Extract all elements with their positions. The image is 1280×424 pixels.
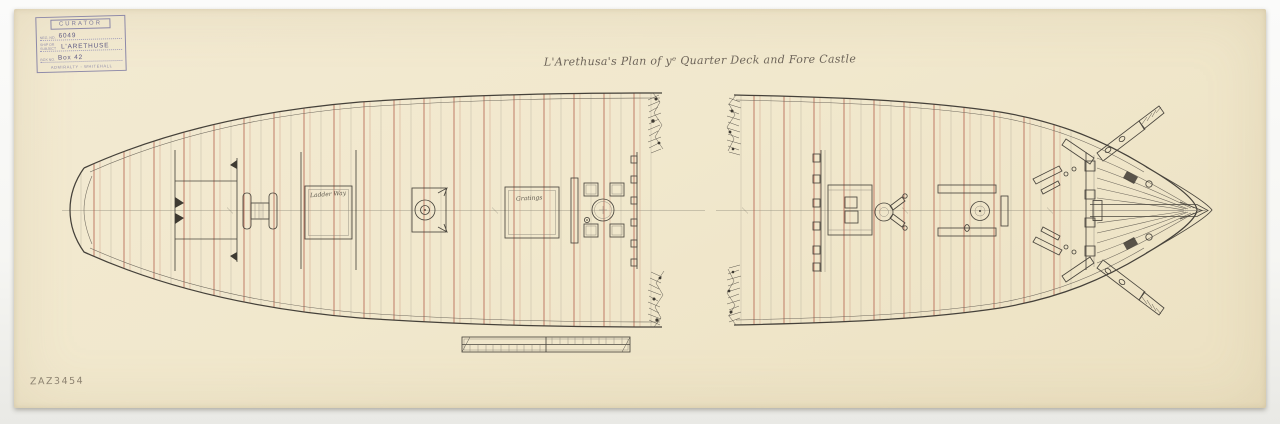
scale-bar xyxy=(462,337,630,352)
stamp-value-ship: L'ARETHUSE xyxy=(61,42,109,50)
stamp-row-neg-no: Neg. No. 6049 xyxy=(40,30,122,41)
head-gratings-bottom xyxy=(1097,211,1194,263)
hull-bow-half xyxy=(727,95,1212,327)
stamp-label-neg-no: Neg. No. xyxy=(40,36,56,40)
stamp-row-ship: Ship or Subject L'ARETHUSE xyxy=(40,41,122,52)
deck-beam-lines-right xyxy=(734,95,1078,327)
stamp-value-neg-no: 6049 xyxy=(58,32,76,39)
deck-label-gratings: Gratings xyxy=(516,194,543,202)
stamp-label-ship: Ship or Subject xyxy=(40,43,58,51)
bowsprit xyxy=(1090,201,1208,221)
photo-background: CURATOR Neg. No. 6049 Ship or Subject L'… xyxy=(0,0,1280,424)
stamp-row-box: Box No. Box 42 xyxy=(40,52,122,63)
stamp-label-box: Box No. xyxy=(40,58,55,62)
deck-beam-lines-left xyxy=(70,93,662,327)
curator-stamp: CURATOR Neg. No. 6049 Ship or Subject L'… xyxy=(35,15,126,73)
catalogue-number: ZAZ3454 xyxy=(30,376,84,388)
stamp-value-box: Box 42 xyxy=(58,54,83,62)
hull-stern-half xyxy=(70,93,664,327)
stamp-header: CURATOR xyxy=(50,18,110,30)
beakhead-bulkhead xyxy=(1085,152,1095,270)
stamp-footer: ADMIRALTY - WHITEHALL xyxy=(41,63,123,70)
